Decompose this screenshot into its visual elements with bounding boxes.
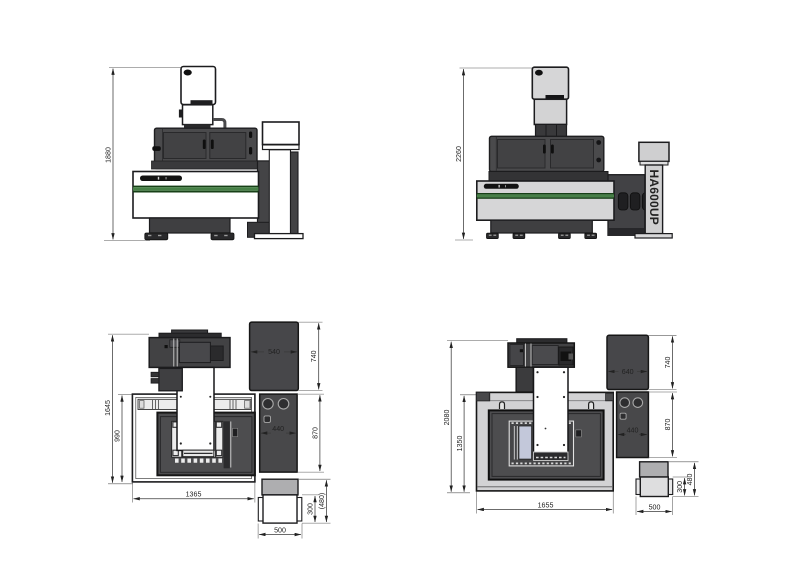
svg-text:740: 740 [664, 357, 672, 369]
svg-text:480: 480 [686, 474, 694, 486]
svg-text:440: 440 [627, 427, 639, 435]
svg-text:HA600UP: HA600UP [647, 170, 661, 225]
svg-text:1350: 1350 [456, 436, 464, 452]
svg-text:2260: 2260 [455, 146, 463, 162]
svg-text:1365: 1365 [186, 491, 202, 499]
svg-text:1655: 1655 [538, 502, 554, 510]
svg-text:300: 300 [676, 481, 684, 493]
svg-text:1880: 1880 [105, 147, 113, 163]
svg-text:990: 990 [114, 430, 122, 442]
svg-text:300: 300 [307, 503, 315, 515]
svg-text:(480): (480) [318, 493, 326, 510]
svg-text:870: 870 [664, 419, 672, 431]
svg-text:1645: 1645 [104, 400, 112, 416]
svg-text:540: 540 [268, 348, 280, 356]
svg-text:500: 500 [649, 504, 661, 512]
svg-text:870: 870 [311, 427, 319, 439]
svg-text:740: 740 [310, 350, 318, 362]
svg-text:500: 500 [274, 527, 286, 535]
svg-text:640: 640 [622, 368, 634, 376]
svg-text:2080: 2080 [443, 410, 451, 426]
svg-text:440: 440 [272, 425, 284, 433]
